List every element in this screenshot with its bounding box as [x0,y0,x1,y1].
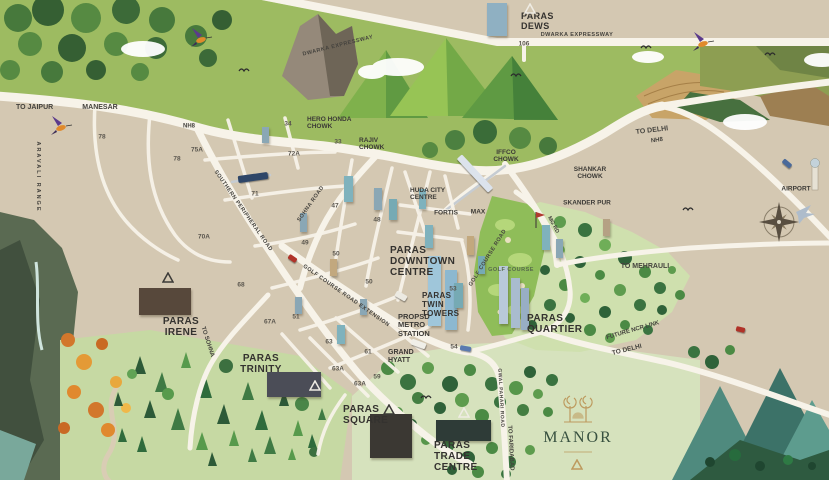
sector-72a-label: 72A [288,150,300,157]
golf-course-road-extension-label: GOLF COURSE ROAD EXTENSION [301,264,390,329]
future-ncr-link-label: FUTURE NCR LINK [606,320,660,342]
airport-label: AIRPORT [781,185,810,192]
grand-hyatt-label: GRAND HYATT [388,349,414,365]
sector-53-label: 53 [449,285,456,292]
sector-33-label: 33 [334,138,341,145]
manor-label[interactable]: MANOR [543,429,613,447]
sector-34-label: 34 [284,120,291,127]
sohna-road-label: SOHNA ROAD [296,185,325,223]
iffco-chowk-label: IFFCO CHOWK [493,149,518,164]
sector-106-label: 106 [519,40,530,47]
paras-dews-marker[interactable] [524,1,536,12]
aravali-range-label: ARAVALI RANGE [35,141,41,212]
nh8-east-label: NH8 [651,137,664,145]
paras-trinity-marker[interactable] [309,378,321,389]
labels-layer: PARAS DEWSPARAS DOWNTOWN CENTREPARAS TWI… [0,0,829,480]
paras-quartier-label[interactable]: PARAS QUARTIER [527,313,582,335]
to-faridabad-label: TO FARIDABAD [505,425,514,471]
paras-dews-label[interactable]: PARAS DEWS [521,11,554,31]
sector-75a-label: 75A [191,146,203,153]
to-delhi-north-label: TO DELHI [635,125,668,137]
manor-marker[interactable] [571,457,583,468]
skander-pur-label: SKANDER PUR [563,199,611,206]
dwarka-expressway-east-label: DWARKA EXPRESSWAY [541,32,614,38]
sector-63-label: 63 [325,338,332,345]
paras-trade-centre-marker[interactable] [458,405,470,416]
sector-49-label: 49 [301,239,308,246]
sector-71-label: 71 [251,190,258,197]
sector-48-label: 48 [373,216,380,223]
propsd-metro-station-label: PROPSD METRO STATION [398,313,430,338]
golf-course-label: GOLF COURSE [488,267,534,273]
to-delhi-south-label: TO DELHI [611,343,642,357]
sector-68-label: 68 [237,281,244,288]
gwal-pahari-road-label: GWAL PAHARI ROAD [496,368,505,427]
sector-67a-label: 67A [264,318,276,325]
sector-63a-label: 63A [332,365,344,372]
paras-irene-label[interactable]: PARAS IRENE [163,316,199,338]
paras-square-marker[interactable] [383,402,395,413]
sector-63a-south-label: 63A [354,380,366,387]
sector-70a-label: 70A [198,233,210,240]
paras-downtown-centre-label[interactable]: PARAS DOWNTOWN CENTRE [390,245,455,279]
sector-78-label: 78 [98,133,105,140]
dwarka-expressway-west-label: DWARKA EXPRESSWAY [302,34,374,58]
nh8-west-label: NH8 [183,124,195,131]
paras-location-map[interactable]: PARAS DEWSPARAS DOWNTOWN CENTREPARAS TWI… [0,0,829,480]
paras-trinity-label[interactable]: PARAS TRINITY [240,353,282,375]
sector-78-south-label: 78 [173,155,180,162]
paras-square-label[interactable]: PARAS SQUARE [343,404,388,426]
fortis-label: FORTIS [434,209,458,216]
mg-rd-label: MG RD [546,215,560,234]
sector-50-label: 50 [332,250,339,257]
paras-trade-centre-label[interactable]: PARAS TRADE CENTRE [434,440,478,474]
sector-61-label: 61 [364,348,371,355]
to-jaipur-label: TO JAIPUR [16,104,53,112]
paras-irene-marker[interactable] [162,270,174,281]
golf-course-road-label: GOLF COURSE ROAD [468,228,508,287]
sector-51-label: 51 [292,313,299,320]
sector-50-south-label: 50 [365,278,372,285]
shankar-chowk-label: SHANKAR CHOWK [574,166,607,181]
hero-honda-chowk-label: HERO HONDA CHOWK [307,116,351,131]
max-label: MAX [471,208,485,215]
sector-54-label: 54 [450,343,457,350]
rajiv-chowk-label: RAJIV CHOWK [359,137,384,152]
manesar-label: MANESAR [82,104,117,112]
huda-city-centre-label: HUDA CITY CENTRE [410,187,445,202]
to-sohna-label: TO SOHNA [199,326,215,358]
sector-59-label: 59 [373,373,380,380]
to-mehrauli-label: TO MEHRAULI [621,263,669,271]
sector-47-label: 47 [331,202,338,209]
southern-peripheral-road-label: SOUTHERN PERIPHERAL ROAD [213,169,274,252]
